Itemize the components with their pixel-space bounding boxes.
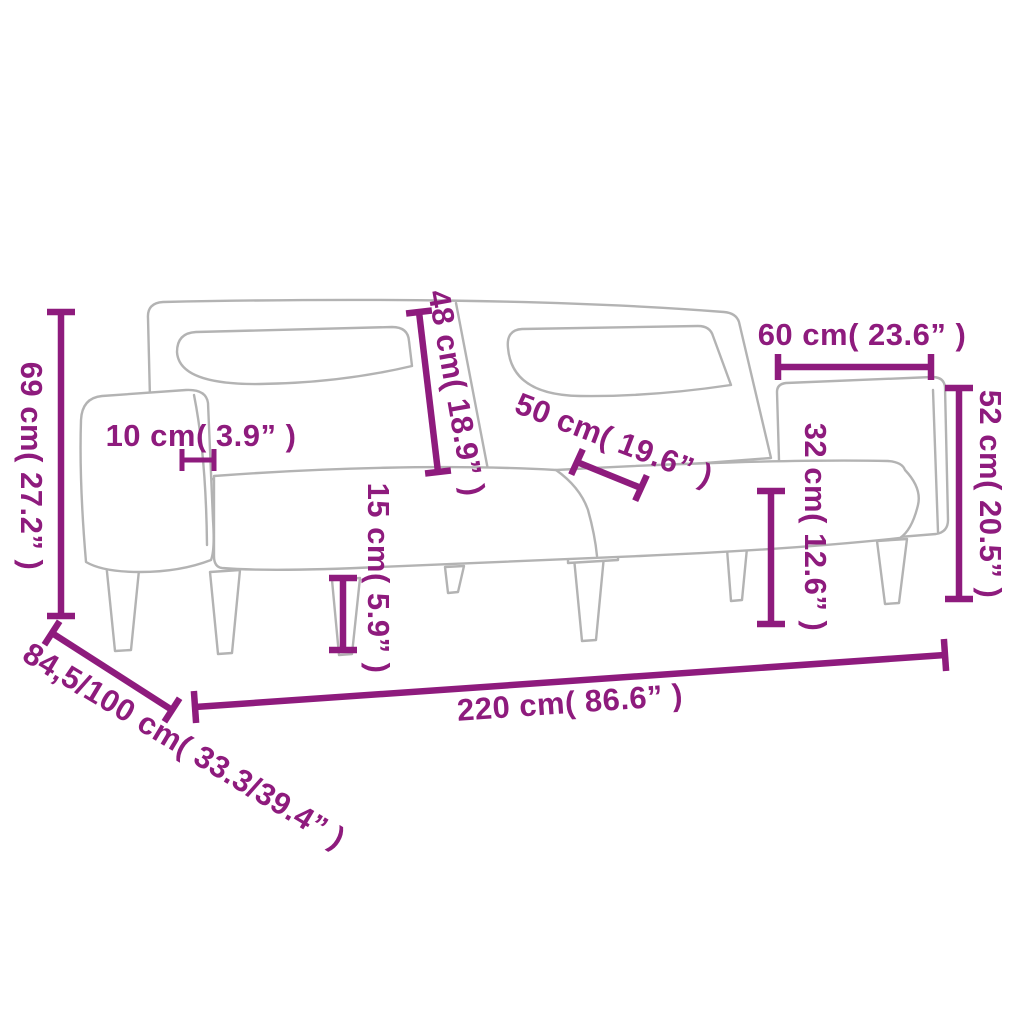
dimension-label-folded-section-height: 52 cm( 20.5” ) xyxy=(972,390,1008,599)
sofa-leg xyxy=(445,566,464,593)
diagram-canvas xyxy=(0,0,1024,1024)
dimension-label-armrest-width: 10 cm( 3.9” ) xyxy=(106,418,297,454)
sofa-leg xyxy=(877,539,907,604)
dimension-line-folded-section-height xyxy=(945,388,973,599)
dimension-label-seat-height: 32 cm( 12.6” ) xyxy=(797,423,833,632)
dimension-label-folded-section-width: 60 cm( 23.6” ) xyxy=(758,317,967,353)
dimension-line-overall-height xyxy=(47,312,75,616)
dimension-label-leg-height: 15 cm( 5.9” ) xyxy=(360,483,396,674)
sofa-leg xyxy=(727,548,747,601)
dimension-line-folded-section-width xyxy=(778,354,931,380)
product-dimension-diagram: 69 cm( 27.2” ) 10 cm( 3.9” ) 48 cm( 18.9… xyxy=(0,0,1024,1024)
sofa-leg xyxy=(574,556,604,641)
sofa-leg xyxy=(106,560,140,651)
dimension-label-overall-height: 69 cm( 27.2” ) xyxy=(13,362,49,571)
sofa-back-cushion-right xyxy=(508,326,731,396)
sofa-leg xyxy=(210,570,240,654)
